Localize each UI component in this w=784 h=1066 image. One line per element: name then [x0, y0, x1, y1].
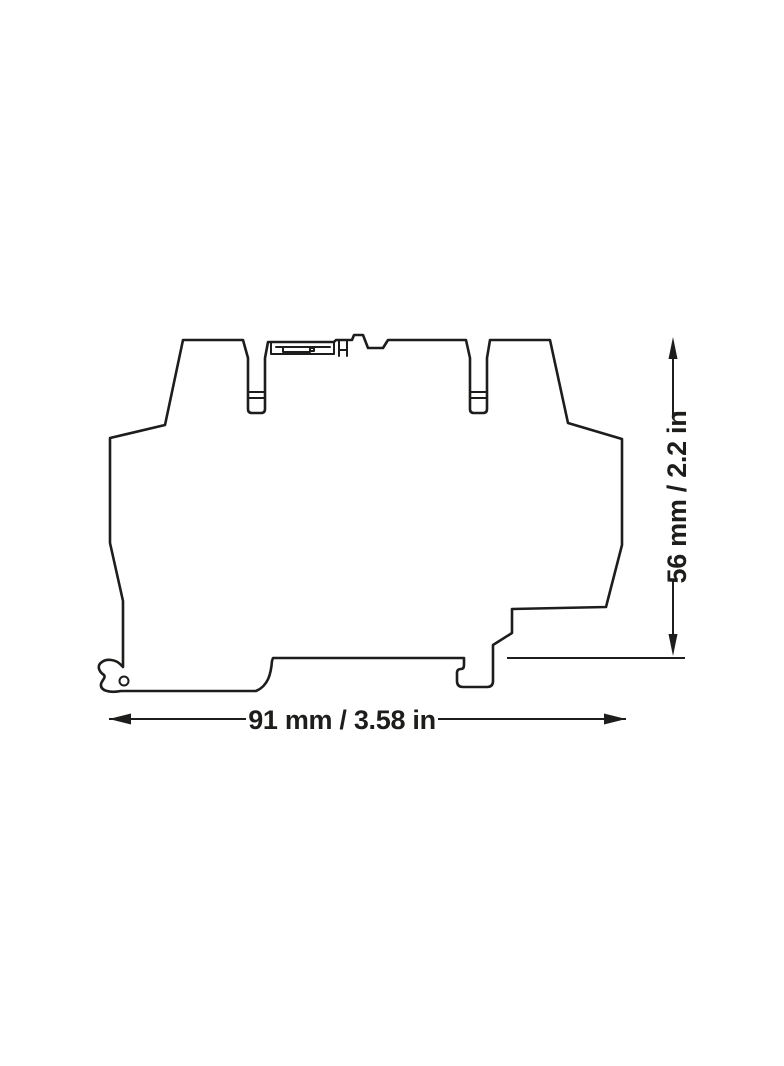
- width-dimension: 91 mm / 3.58 in: [109, 705, 626, 735]
- width-dimension-label: 91 mm / 3.58 in: [248, 705, 436, 735]
- right-arrowhead-icon: [604, 714, 626, 725]
- clamp-slot-detail-lines: [248, 392, 487, 398]
- latch-clip-post: [339, 340, 347, 356]
- din-foot-pin: [120, 677, 129, 686]
- technical-drawing-page: 91 mm / 3.58 in 56 mm / 2.2 in: [0, 0, 784, 1066]
- down-arrowhead-icon: [669, 634, 678, 656]
- device-drawing: [99, 335, 622, 692]
- left-arrowhead-icon: [109, 714, 131, 725]
- up-arrowhead-icon: [669, 337, 678, 359]
- dimension-annotations: 91 mm / 3.58 in 56 mm / 2.2 in: [109, 337, 692, 735]
- height-dimension-label: 56 mm / 2.2 in: [662, 411, 692, 584]
- height-dimension: 56 mm / 2.2 in: [507, 337, 692, 658]
- technical-drawing-canvas: 91 mm / 3.58 in 56 mm / 2.2 in: [0, 0, 784, 1066]
- device-outline: [99, 335, 622, 692]
- release-latch-detail: [271, 342, 334, 354]
